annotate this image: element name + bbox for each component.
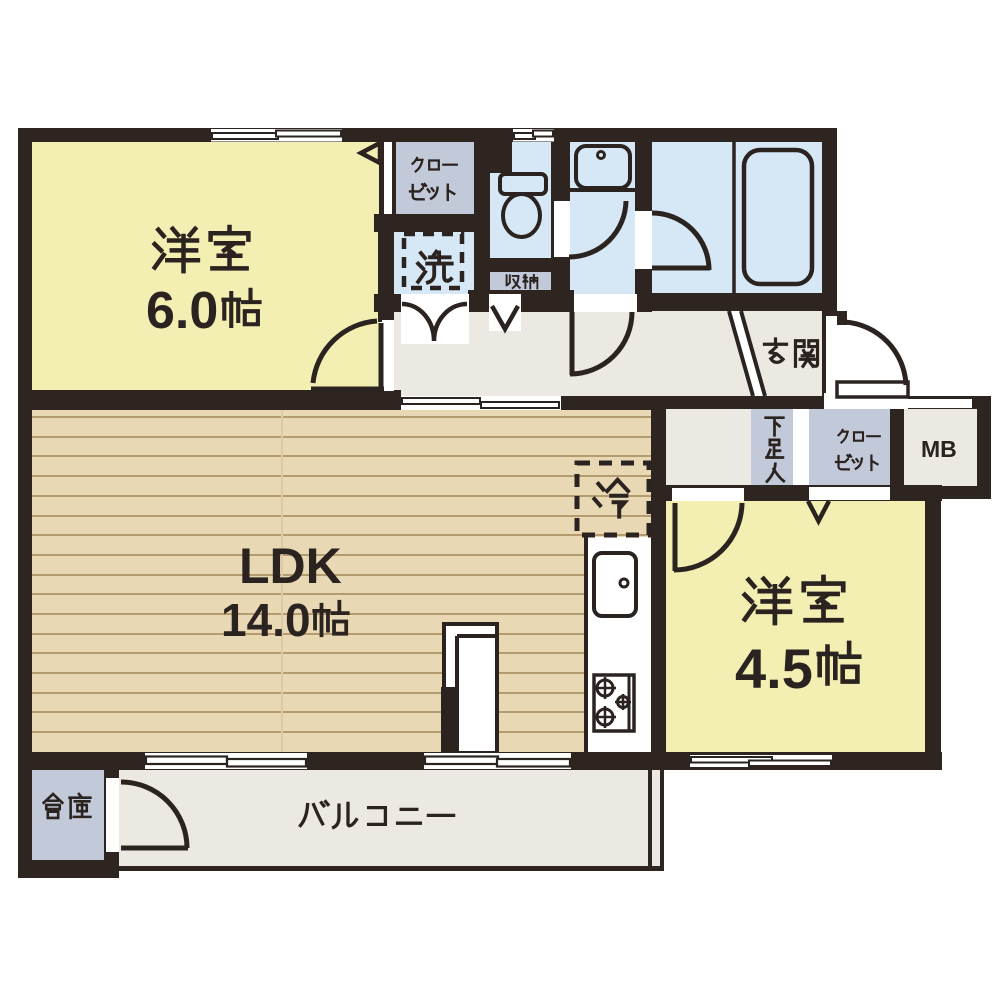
svg-text:MB: MB bbox=[921, 436, 957, 462]
svg-text:LDK: LDK bbox=[239, 538, 342, 594]
svg-text:6.0: 6.0 bbox=[146, 282, 218, 340]
svg-text:14.0: 14.0 bbox=[221, 594, 311, 646]
svg-text:4.5: 4.5 bbox=[735, 637, 813, 700]
